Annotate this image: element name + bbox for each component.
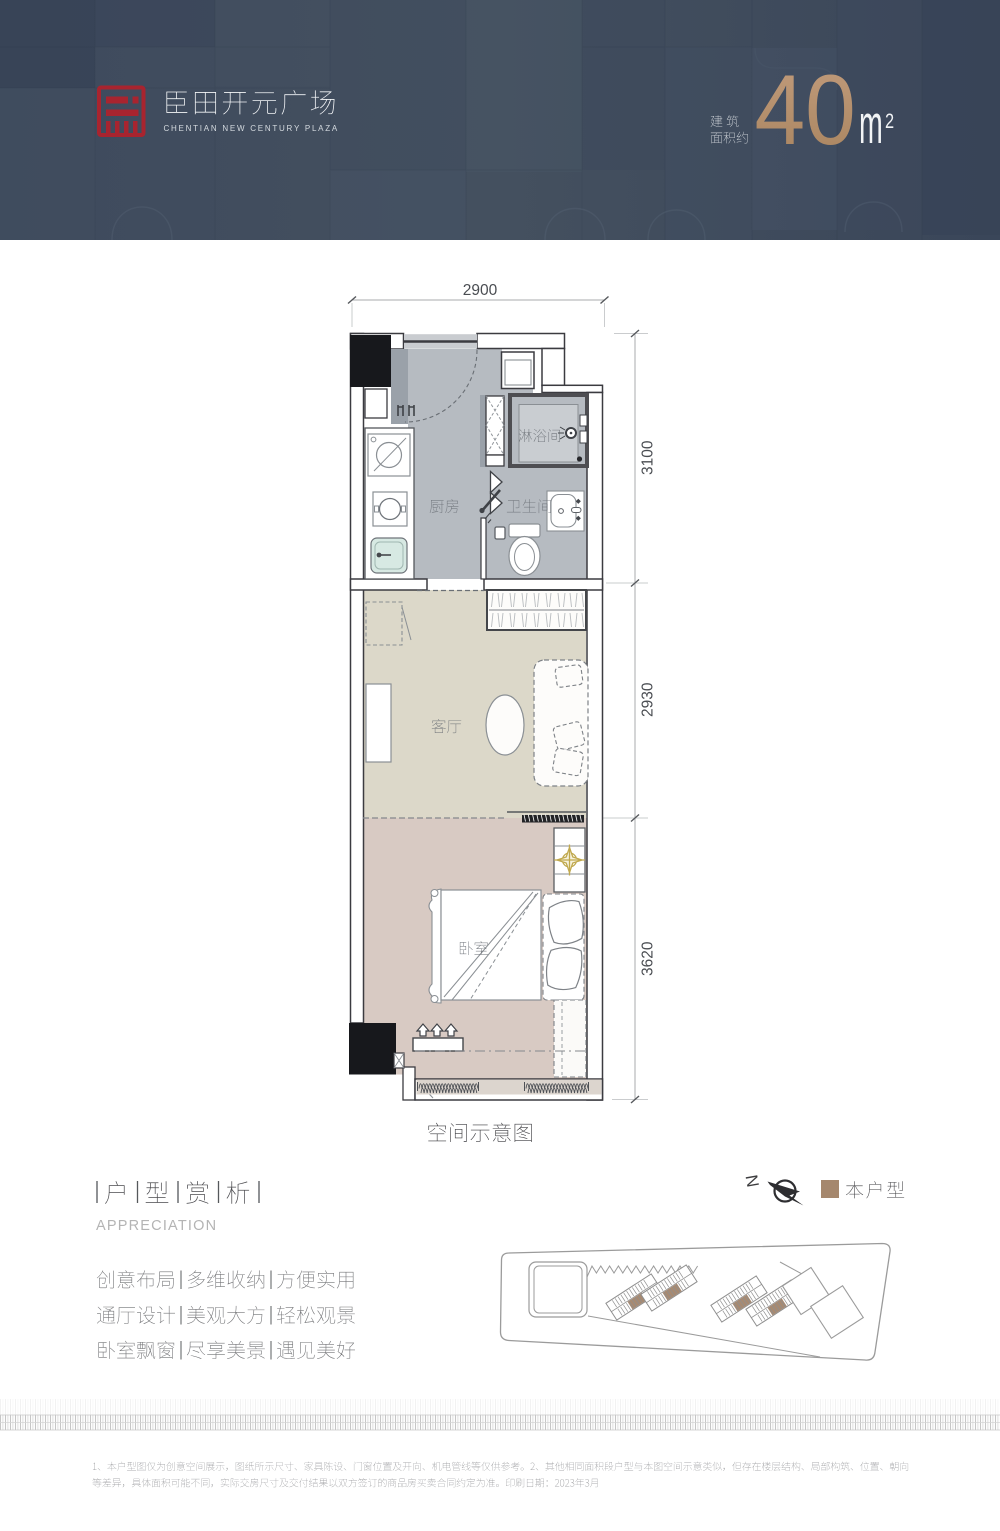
svg-text:APPRECIATION: APPRECIATION xyxy=(96,1218,217,1234)
svg-text:2: 2 xyxy=(885,109,894,132)
svg-text:m: m xyxy=(859,94,883,155)
svg-text:2900: 2900 xyxy=(463,282,498,299)
svg-text:N: N xyxy=(742,1173,763,1188)
svg-text:CHENTIAN NEW CENTURY PLAZA: CHENTIAN NEW CENTURY PLAZA xyxy=(164,124,339,133)
svg-text:2930: 2930 xyxy=(640,682,657,717)
svg-text:3620: 3620 xyxy=(640,941,657,976)
svg-text:3100: 3100 xyxy=(640,440,657,475)
svg-text:40: 40 xyxy=(755,56,856,166)
